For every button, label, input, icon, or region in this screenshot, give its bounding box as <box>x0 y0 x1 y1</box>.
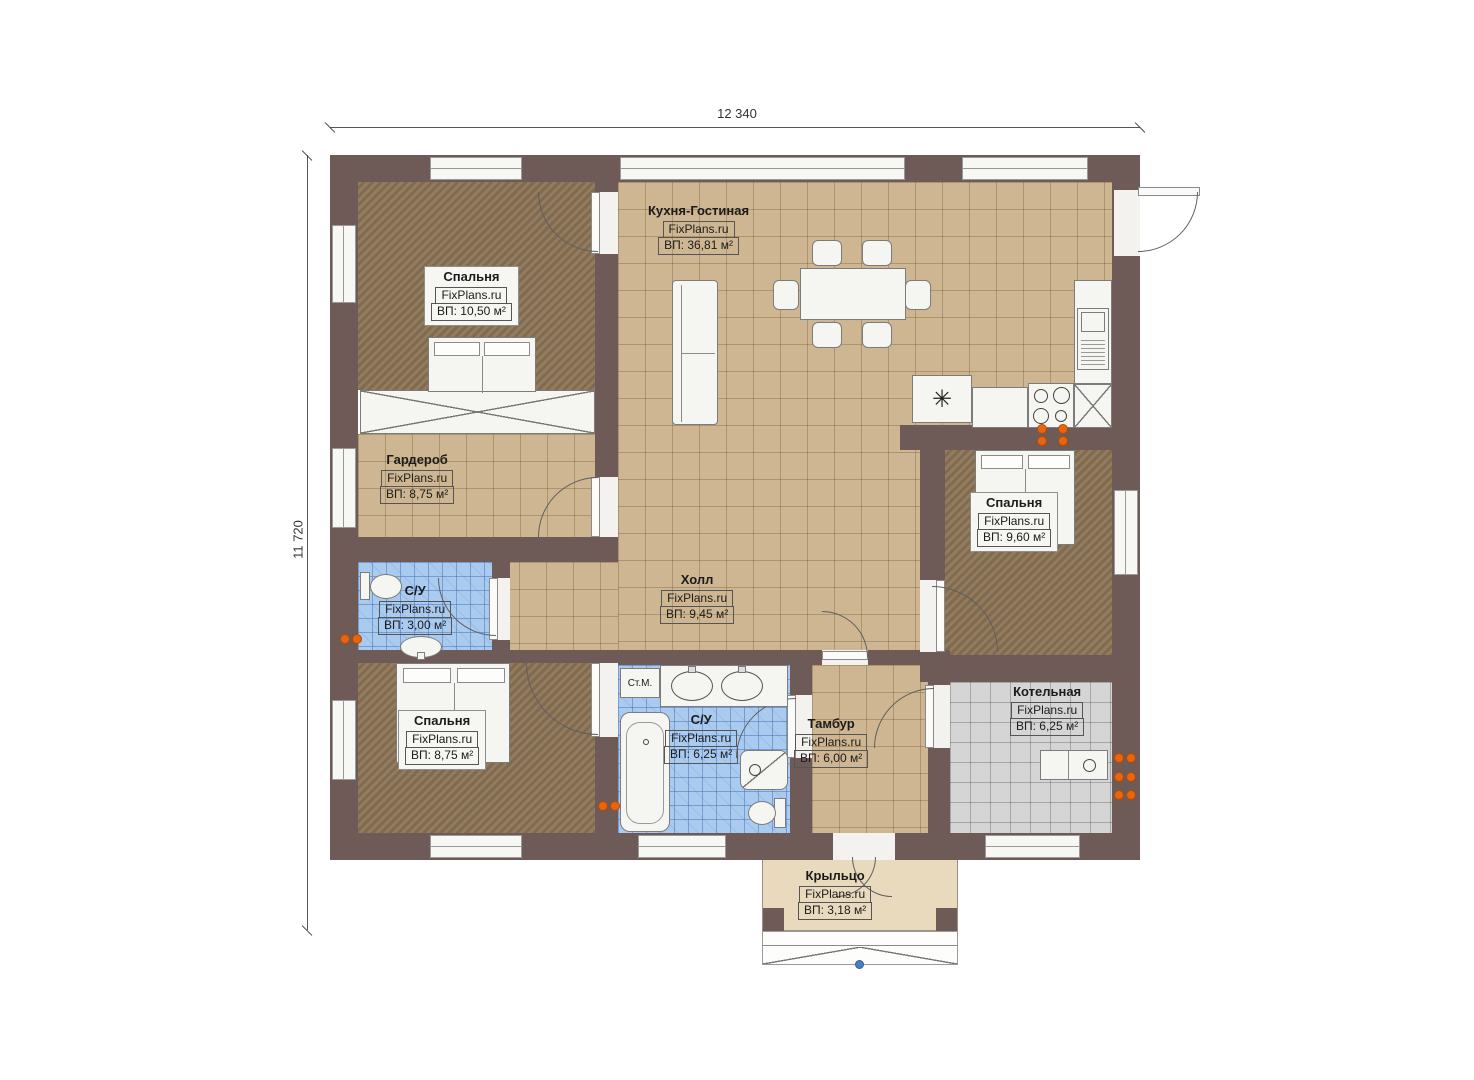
pillow <box>1028 455 1070 469</box>
room-area: ВП: 3,00 м² <box>378 617 452 635</box>
shower-tray <box>740 750 788 790</box>
window <box>962 157 1088 180</box>
sink-tap <box>417 652 425 660</box>
window <box>1114 490 1138 575</box>
pillow <box>981 455 1023 469</box>
power-outlet <box>1058 424 1068 446</box>
room-label-hall: Холл FixPlans.ru ВП: 9,45 м² <box>660 572 734 624</box>
chair <box>773 280 799 310</box>
pillow <box>484 342 530 356</box>
power-outlet <box>1114 790 1136 800</box>
room-label-wardrobe: Гардероб FixPlans.ru ВП: 8,75 м² <box>380 452 454 504</box>
room-area: ВП: 10,50 м² <box>431 303 512 321</box>
room-area: ВП: 9,60 м² <box>977 529 1051 547</box>
room-brand: FixPlans.ru <box>661 590 733 608</box>
power-outlet <box>1037 424 1047 446</box>
room-name: Кухня-Гостиная <box>648 203 749 220</box>
sink-tap <box>688 666 696 673</box>
wall-interior <box>595 737 618 833</box>
vanity-counter <box>660 665 788 707</box>
power-outlet <box>598 801 620 811</box>
room-area: ВП: 3,18 м² <box>798 902 872 920</box>
room-name: Котельная <box>1013 684 1081 701</box>
room-brand: FixPlans.ru <box>406 731 478 749</box>
room-name: Холл <box>681 572 714 589</box>
sink-tap <box>738 666 746 673</box>
room-label-vestibule: Тамбур FixPlans.ru ВП: 6,00 м² <box>794 716 868 768</box>
room-brand: FixPlans.ru <box>795 734 867 752</box>
window <box>620 157 905 180</box>
room-area: ВП: 6,25 м² <box>1010 718 1084 736</box>
room-brand: FixPlans.ru <box>381 470 453 488</box>
wall-interior <box>358 537 618 562</box>
wall-interior <box>358 650 618 663</box>
wall-interior <box>928 748 950 835</box>
power-outlet <box>1114 772 1136 782</box>
room-label-kitchen-living: Кухня-Гостиная FixPlans.ru ВП: 36,81 м² <box>648 203 749 255</box>
step-diagonal <box>763 947 861 964</box>
room-area: ВП: 6,25 м² <box>664 746 738 764</box>
room-label-bedroom-right: Спальня FixPlans.ru ВП: 9,60 м² <box>970 492 1058 552</box>
room-name: Спальня <box>443 269 499 286</box>
sofa-cushion-line <box>682 353 715 354</box>
shower-drain <box>749 764 761 776</box>
room-brand: FixPlans.ru <box>379 601 451 619</box>
sink <box>671 671 713 701</box>
wall-interior <box>920 655 1112 682</box>
room-name: Спальня <box>414 713 470 730</box>
room-brand: FixPlans.ru <box>1011 702 1083 720</box>
toilet <box>748 801 776 825</box>
wall-interior <box>618 650 822 665</box>
toilet-tank <box>360 572 370 600</box>
closet <box>360 390 595 434</box>
floor-plan: ✳ Ст.М. Кухня-Гостиная <box>0 0 1474 1080</box>
burner <box>1053 387 1070 404</box>
porch-pillar <box>763 908 784 931</box>
room-name: Спальня <box>986 495 1042 512</box>
window <box>332 225 356 303</box>
room-area: ВП: 8,75 м² <box>380 486 454 504</box>
room-name: С/У <box>691 712 712 729</box>
kitchen-counter <box>972 387 1028 428</box>
room-name: С/У <box>405 583 426 600</box>
washing-machine-label: Ст.М. <box>628 678 653 689</box>
bed <box>428 337 536 392</box>
wall-interior <box>595 182 618 192</box>
step-diagonal <box>859 947 957 964</box>
power-outlet <box>340 634 362 644</box>
window <box>430 835 522 858</box>
room-area: ВП: 8,75 м² <box>405 747 479 765</box>
chair <box>812 240 842 266</box>
room-name: Крыльцо <box>806 868 865 885</box>
pillow <box>457 668 505 683</box>
room-brand: FixPlans.ru <box>435 287 507 305</box>
bathtub-drain <box>643 739 649 745</box>
bathtub <box>620 712 670 832</box>
kitchen-sink-icon: ✳ <box>932 385 952 414</box>
step-line <box>763 945 957 946</box>
room-brand: FixPlans.ru <box>799 886 871 904</box>
bed-divider <box>482 356 483 393</box>
room-area: ВП: 9,45 м² <box>660 606 734 624</box>
pillow <box>403 668 451 683</box>
wall-interior <box>595 254 618 477</box>
window <box>638 835 726 858</box>
boiler-divider <box>1068 751 1069 779</box>
room-label-bedroom-bottom-left: Спальня FixPlans.ru ВП: 8,75 м² <box>398 710 486 770</box>
room-brand: FixPlans.ru <box>665 730 737 748</box>
dimension-line-top <box>330 127 1140 128</box>
room-name: Тамбур <box>808 716 855 733</box>
room-brand: FixPlans.ru <box>663 221 735 239</box>
fridge <box>1077 308 1109 370</box>
wall-interior <box>492 562 510 578</box>
wall-interior <box>920 450 945 580</box>
survey-marker <box>855 960 864 969</box>
room-label-bathroom-small: С/У FixPlans.ru ВП: 3,00 м² <box>378 583 452 635</box>
window <box>332 448 356 528</box>
sofa <box>672 280 718 425</box>
room-label-boiler-room: Котельная FixPlans.ru ВП: 6,25 м² <box>1010 684 1084 736</box>
room-label-bathroom-main: С/У FixPlans.ru ВП: 6,25 м² <box>664 712 738 764</box>
boiler-gauge <box>1083 759 1096 772</box>
chair <box>812 322 842 348</box>
kitchen-island-sink: ✳ <box>912 375 972 423</box>
burner <box>1033 408 1049 424</box>
corner-cabinet <box>1074 384 1112 428</box>
dining-table <box>800 268 906 320</box>
chair <box>862 322 892 348</box>
fridge-vents <box>1081 337 1105 365</box>
sink <box>721 671 763 701</box>
window <box>985 835 1080 858</box>
chair <box>862 240 892 266</box>
wall-interior <box>900 425 1112 450</box>
burner <box>1055 410 1067 422</box>
burner <box>1034 389 1048 403</box>
window <box>430 157 522 180</box>
washing-machine: Ст.М. <box>620 668 660 698</box>
wall-interior <box>790 758 812 835</box>
stove <box>1028 383 1074 428</box>
dimension-label-width: 12 340 <box>687 106 787 121</box>
door-opening-entry <box>1114 190 1140 256</box>
floor-corridor <box>492 562 618 650</box>
dimension-line-left <box>307 155 308 930</box>
room-label-bedroom-top-left: Спальня FixPlans.ru ВП: 10,50 м² <box>424 266 519 326</box>
bathtub-inner <box>626 722 664 824</box>
freezer-compartment <box>1081 312 1105 332</box>
room-area: ВП: 36,81 м² <box>658 237 739 255</box>
window <box>332 700 356 780</box>
wall-interior <box>790 665 812 695</box>
room-name: Гардероб <box>386 452 447 469</box>
porch-pillar <box>936 908 957 931</box>
pillow <box>434 342 480 356</box>
dimension-label-height: 11 720 <box>291 510 306 570</box>
boiler-unit <box>1040 750 1108 780</box>
power-outlet <box>1114 753 1136 763</box>
room-label-porch: Крыльцо FixPlans.ru ВП: 3,18 м² <box>798 868 872 920</box>
chair <box>905 280 931 310</box>
room-area: ВП: 6,00 м² <box>794 750 868 768</box>
door-opening-porch <box>833 833 895 860</box>
room-brand: FixPlans.ru <box>978 513 1050 531</box>
